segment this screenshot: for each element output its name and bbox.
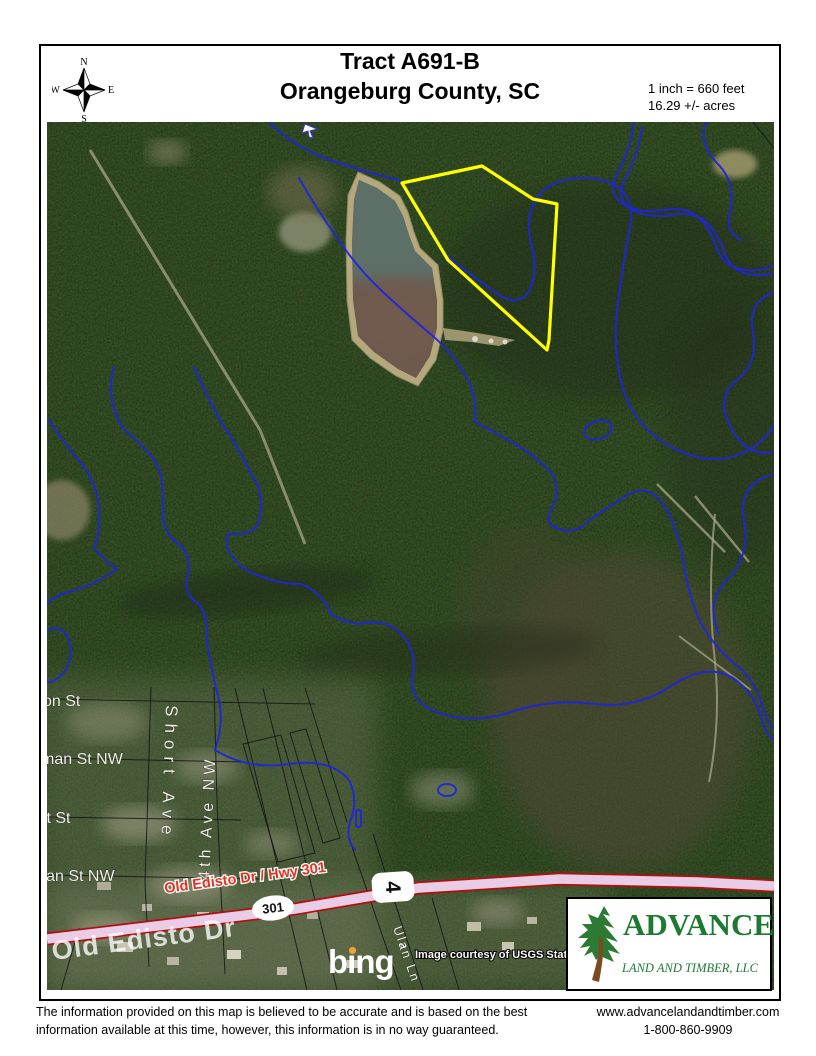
svg-text:4: 4 — [381, 880, 405, 894]
street-label-lian-st: lian St NW — [47, 868, 115, 885]
bing-trademark: ™ — [399, 943, 407, 952]
compass-w: W — [52, 85, 61, 96]
street-label-man-st: man St NW — [47, 751, 124, 768]
svg-text:301: 301 — [261, 899, 284, 917]
scale-text: 1 inch = 660 feet — [648, 80, 745, 97]
disclaimer: The information provided on this map is … — [36, 1004, 527, 1039]
street-label-on-st: on St — [47, 693, 81, 710]
street-label-tt-st: tt St — [47, 810, 71, 827]
pine-tree-icon — [570, 902, 626, 988]
compass-e: E — [108, 85, 114, 96]
usgs-credit: Image courtesy of USGS State — [415, 949, 573, 961]
disclaimer-line2: information available at this time, howe… — [36, 1022, 527, 1040]
compass-rose-icon: N E S W — [52, 52, 116, 124]
bing-logo: bing — [328, 943, 394, 980]
highway-shield-4: 4 — [371, 871, 415, 904]
tract-title: Tract A691-B — [39, 46, 781, 76]
acreage-text: 16.29 +/- acres — [648, 97, 745, 114]
brand-name: ADVANCE — [623, 907, 774, 943]
company-logo-box: ADVANCE LAND AND TIMBER, LLC — [566, 897, 772, 991]
bing-i-dot-icon — [349, 947, 356, 954]
disclaimer-line1: The information provided on this map is … — [36, 1004, 527, 1022]
compass-n: N — [80, 57, 87, 68]
scale-block: 1 inch = 660 feet 16.29 +/- acres — [648, 80, 745, 114]
aerial-map: Old Edisto Dr 301 4 Old Edisto Dr / Hwy … — [47, 122, 774, 990]
phone-text: 1-800-860-9909 — [592, 1022, 784, 1040]
website-text: www.advancelandandtimber.com — [592, 1004, 784, 1022]
brand-subtitle: LAND AND TIMBER, LLC — [622, 961, 758, 976]
contact-block: www.advancelandandtimber.com 1-800-860-9… — [592, 1004, 784, 1039]
